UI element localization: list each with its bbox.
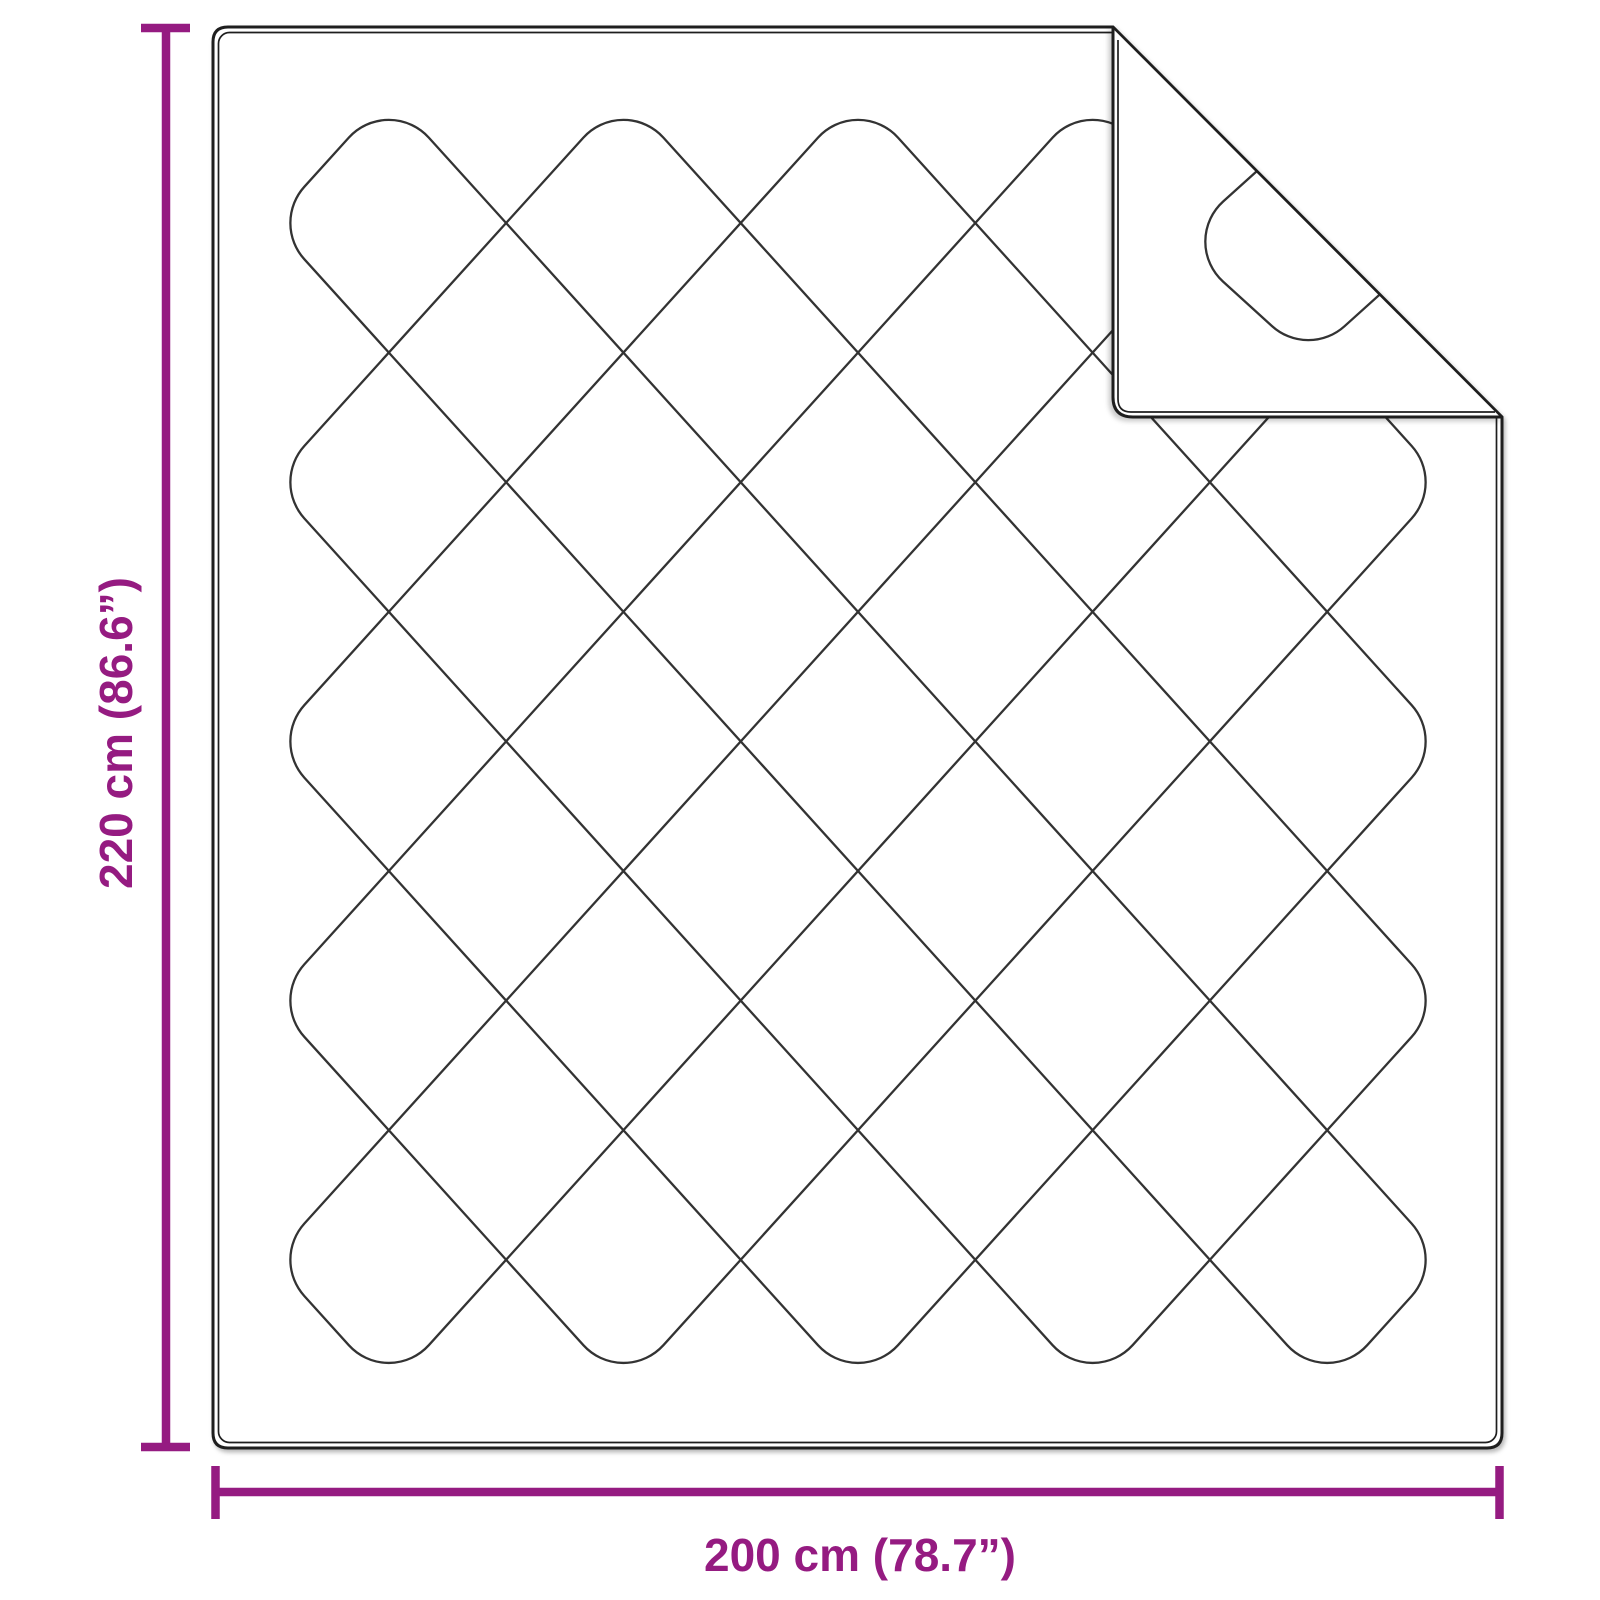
page-background: 220 cm (86.6”) 200 cm (78.7”) [0, 0, 1600, 1600]
blanket-dimension-diagram: 220 cm (86.6”) 200 cm (78.7”) [0, 0, 1600, 1600]
width-label: 200 cm (78.7”) [704, 1529, 1016, 1581]
fold-flap [1113, 0, 1600, 417]
height-label: 220 cm (86.6”) [90, 577, 142, 889]
height-dimension-line [141, 28, 190, 1447]
width-dimension-line [216, 1466, 1500, 1519]
blanket [213, 0, 1600, 1448]
